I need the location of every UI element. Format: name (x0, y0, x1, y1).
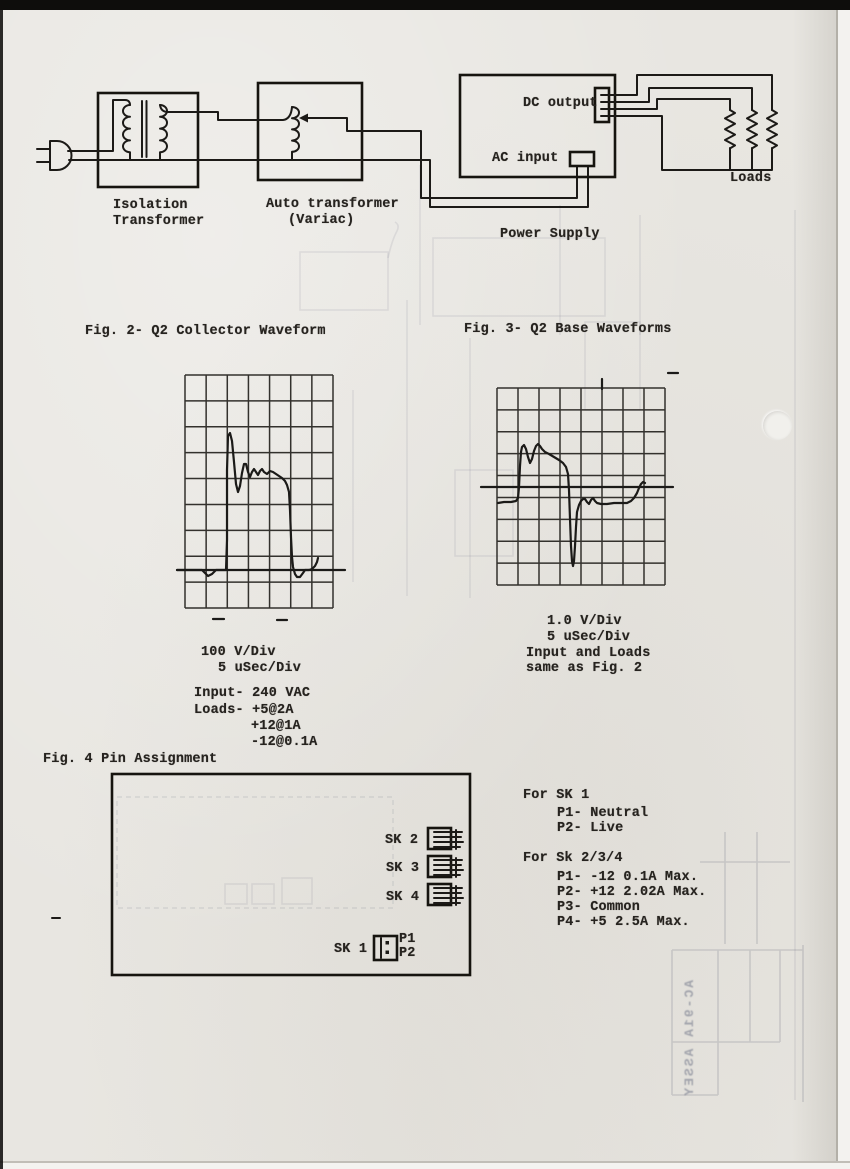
notes-sk1-p1: P1- Neutral (557, 806, 648, 821)
label-power-supply: Power Supply (500, 227, 600, 242)
fig3-note2: same as Fig. 2 (526, 661, 642, 676)
load-resistor-3 (767, 110, 777, 148)
label-sk4: SK 4 (386, 890, 419, 905)
fig3-title: Fig. 3- Q2 Base Waveforms (464, 322, 672, 337)
label-dc-output: DC output (523, 96, 598, 111)
fig3-tdiv: 5 uSec/Div (547, 630, 630, 645)
fig2-vdiv: 100 V/Div (201, 645, 276, 660)
label-sk1: SK 1 (334, 942, 367, 957)
fig2-input: Input- 240 VAC (194, 686, 310, 701)
test-setup-diagram (37, 75, 777, 207)
scan-edge-top (0, 0, 850, 10)
label-sk1-p1: P1 (399, 932, 416, 947)
ghost-title-block-text: AC-91A ASSEY (682, 980, 697, 1110)
isolation-transformer-symbol (68, 93, 198, 187)
fig3-vdiv: 1.0 V/Div (547, 614, 622, 629)
label-auto-transformer-line1: Auto transformer (266, 197, 399, 212)
load-resistor-1 (725, 110, 735, 148)
mains-plug-icon (37, 141, 72, 170)
page-edge-right (836, 0, 850, 1169)
label-loads: Loads (730, 171, 772, 186)
label-sk2: SK 2 (385, 833, 418, 848)
sk4-connector-symbol (428, 884, 463, 905)
fig2-load3: -12@0.1A (251, 735, 317, 750)
punch-hole (763, 411, 792, 440)
schematic-line-art (0, 0, 850, 1169)
notes-sk234-p1: P1- -12 0.1A Max. (557, 870, 698, 885)
auto-transformer-symbol (160, 83, 577, 198)
fig2-load2: +12@1A (251, 719, 301, 734)
fig4-title: Fig. 4 Pin Assignment (43, 752, 217, 767)
notes-sk234-header: For Sk 2/3/4 (523, 851, 623, 866)
notes-sk1-header: For SK 1 (523, 788, 589, 803)
label-sk3: SK 3 (386, 861, 419, 876)
label-auto-transformer-line2: (Variac) (288, 213, 354, 228)
fig2-tdiv: 5 uSec/Div (218, 661, 301, 676)
sk1-connector-symbol (374, 936, 397, 960)
label-isolation-transformer-line2: Transformer (113, 214, 204, 229)
fig3-oscilloscope-graticule (481, 373, 678, 585)
label-isolation-transformer-line1: Isolation (113, 198, 188, 213)
notes-sk234-p2: P2- +12 2.02A Max. (557, 885, 706, 900)
scanned-document-page: Isolation Transformer Auto transformer (… (0, 0, 850, 1169)
notes-sk1-p2: P2- Live (557, 821, 623, 836)
fig2-title: Fig. 2- Q2 Collector Waveform (85, 324, 326, 339)
scan-edge-left (0, 0, 3, 1169)
scan-shading-right (792, 0, 836, 1169)
load-wiring (601, 75, 777, 170)
notes-sk234-p4: P4- +5 2.5A Max. (557, 915, 690, 930)
fig2-load1: Loads- +5@2A (194, 703, 294, 718)
variac-tap-arrow (299, 114, 308, 123)
label-sk1-p2: P2 (399, 946, 416, 961)
page-edge-bottom (0, 1161, 850, 1169)
load-resistor-2 (747, 110, 757, 148)
fig3-note1: Input and Loads (526, 646, 651, 661)
ac-input-connector (570, 152, 594, 166)
fig2-oscilloscope-graticule (177, 375, 345, 620)
label-ac-input: AC input (492, 151, 558, 166)
sk3-connector-symbol (428, 856, 463, 877)
sk2-connector-symbol (428, 828, 463, 849)
notes-sk234-p3: P3- Common (557, 900, 640, 915)
